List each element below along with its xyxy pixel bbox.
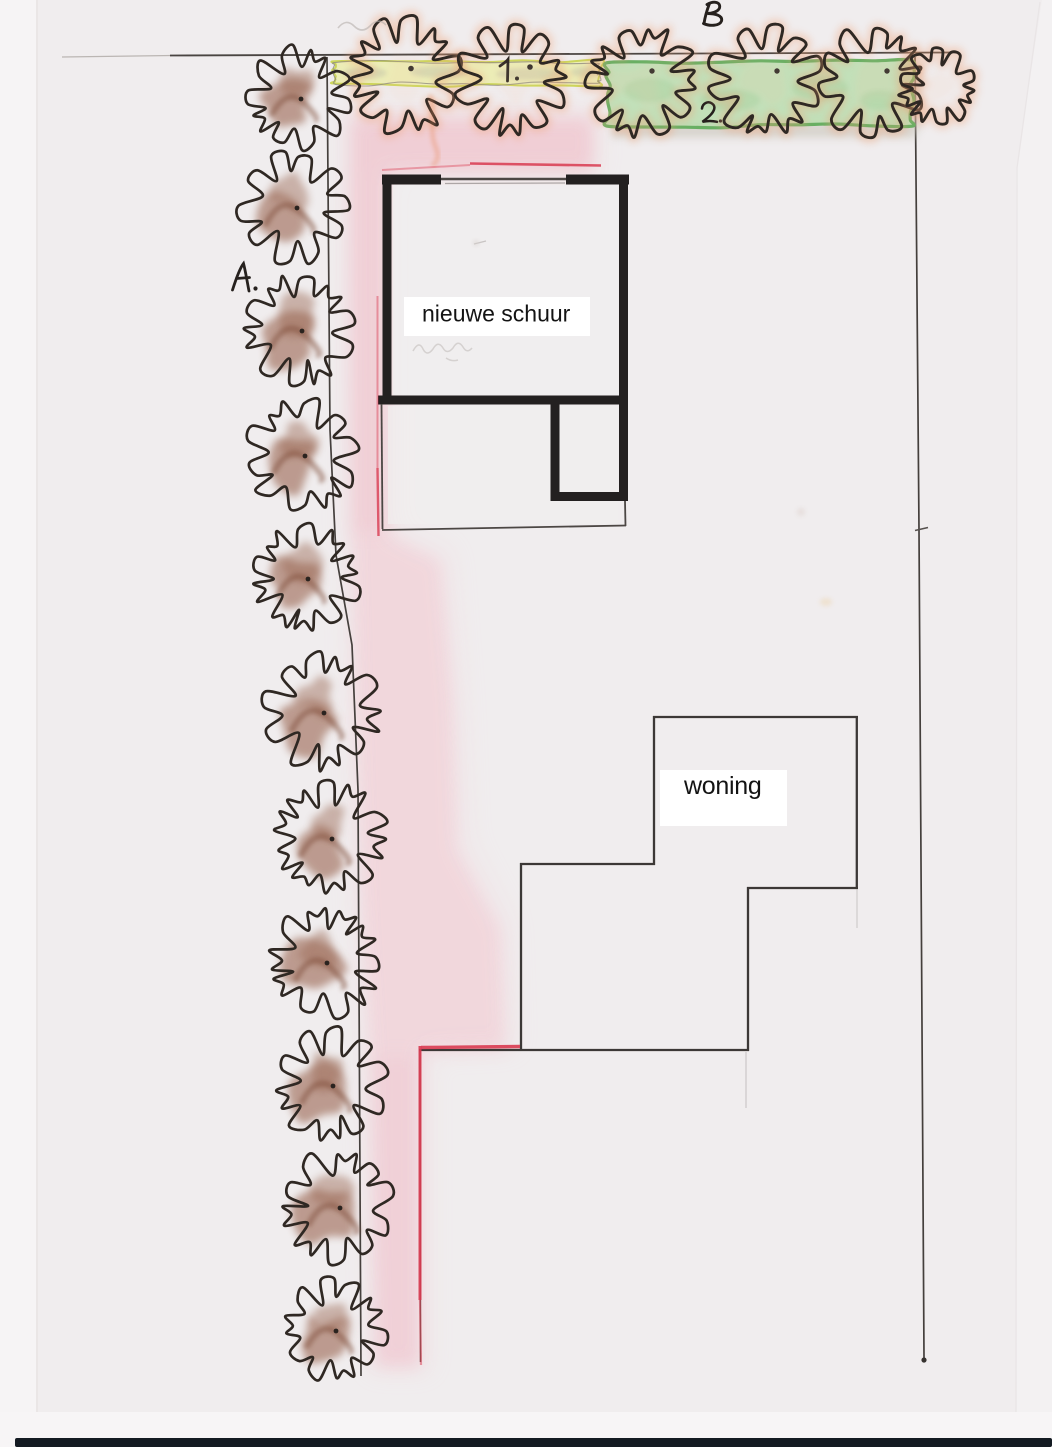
svg-text:nieuwe schuur: nieuwe schuur bbox=[422, 301, 571, 327]
svg-text:woning: woning bbox=[683, 772, 761, 800]
